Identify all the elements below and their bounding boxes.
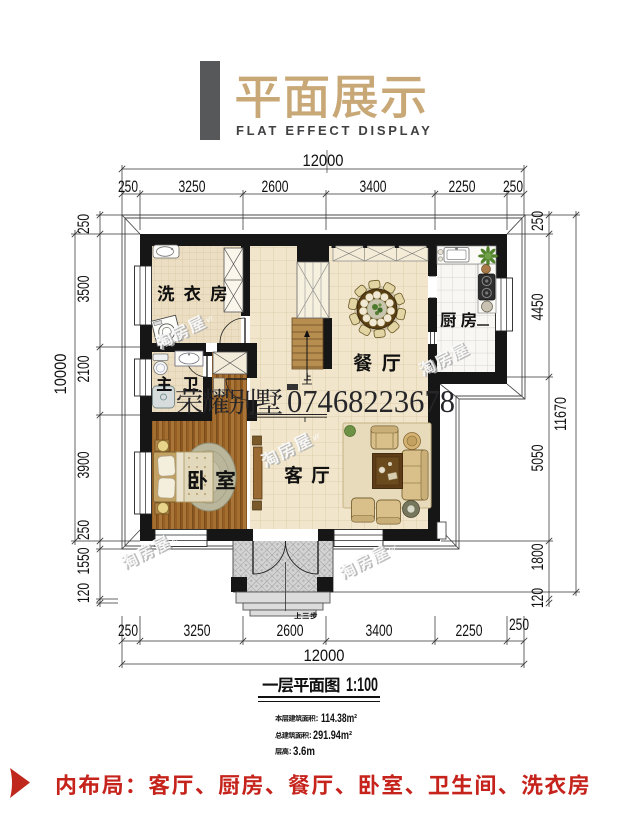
- svg-text:3900: 3900: [74, 452, 93, 479]
- svg-text:10000: 10000: [51, 354, 70, 395]
- svg-text:3250: 3250: [184, 621, 211, 640]
- svg-text:120: 120: [528, 588, 547, 608]
- svg-text:3.6m: 3.6m: [293, 746, 315, 758]
- svg-text:250: 250: [74, 520, 93, 540]
- svg-text:3250: 3250: [179, 177, 206, 196]
- svg-text:2100: 2100: [74, 356, 93, 383]
- svg-text:12000: 12000: [304, 646, 345, 665]
- svg-text:250: 250: [509, 615, 529, 634]
- svg-text:2600: 2600: [262, 177, 289, 196]
- svg-text:250: 250: [74, 214, 93, 234]
- svg-text:3400: 3400: [360, 177, 387, 196]
- svg-text:4450: 4450: [528, 294, 547, 321]
- svg-text:1800: 1800: [528, 544, 547, 571]
- svg-text:11670: 11670: [551, 397, 570, 431]
- svg-text:120: 120: [74, 583, 93, 603]
- svg-text:2250: 2250: [449, 177, 476, 196]
- svg-text:114.38m²: 114.38m²: [321, 713, 357, 725]
- svg-text:250: 250: [118, 177, 138, 196]
- svg-text:291.94m²: 291.94m²: [313, 730, 352, 742]
- svg-text:5050: 5050: [528, 445, 547, 472]
- svg-text:2250: 2250: [456, 621, 483, 640]
- svg-text:FLAT EFFECT DISPLAY: FLAT EFFECT DISPLAY: [236, 123, 432, 138]
- svg-text:12000: 12000: [303, 151, 344, 170]
- svg-text:250: 250: [528, 211, 547, 231]
- svg-text:1:100: 1:100: [346, 675, 378, 696]
- svg-text:250: 250: [503, 177, 523, 196]
- svg-text:07468223678: 07468223678: [287, 383, 455, 419]
- svg-text:3400: 3400: [366, 621, 393, 640]
- svg-text:1550: 1550: [74, 548, 93, 575]
- svg-text:250: 250: [118, 621, 138, 640]
- svg-text:3500: 3500: [74, 276, 93, 303]
- svg-text:2600: 2600: [277, 621, 304, 640]
